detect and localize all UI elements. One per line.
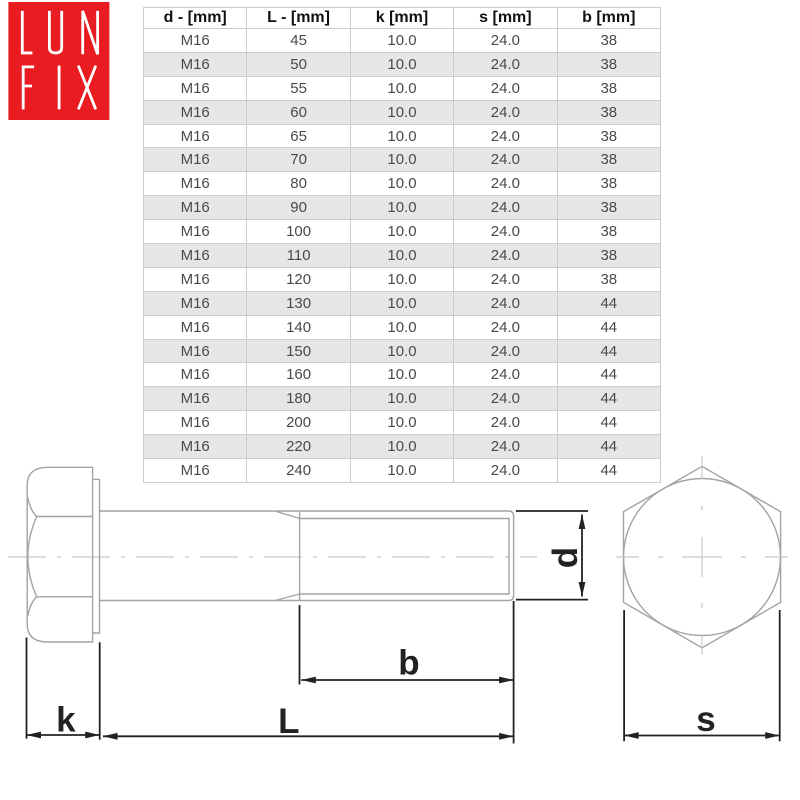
svg-text:L: L (278, 702, 299, 741)
svg-text:s: s (696, 700, 715, 739)
svg-text:d: d (546, 547, 585, 568)
svg-text:k: k (56, 701, 76, 740)
svg-text:b: b (398, 644, 419, 683)
